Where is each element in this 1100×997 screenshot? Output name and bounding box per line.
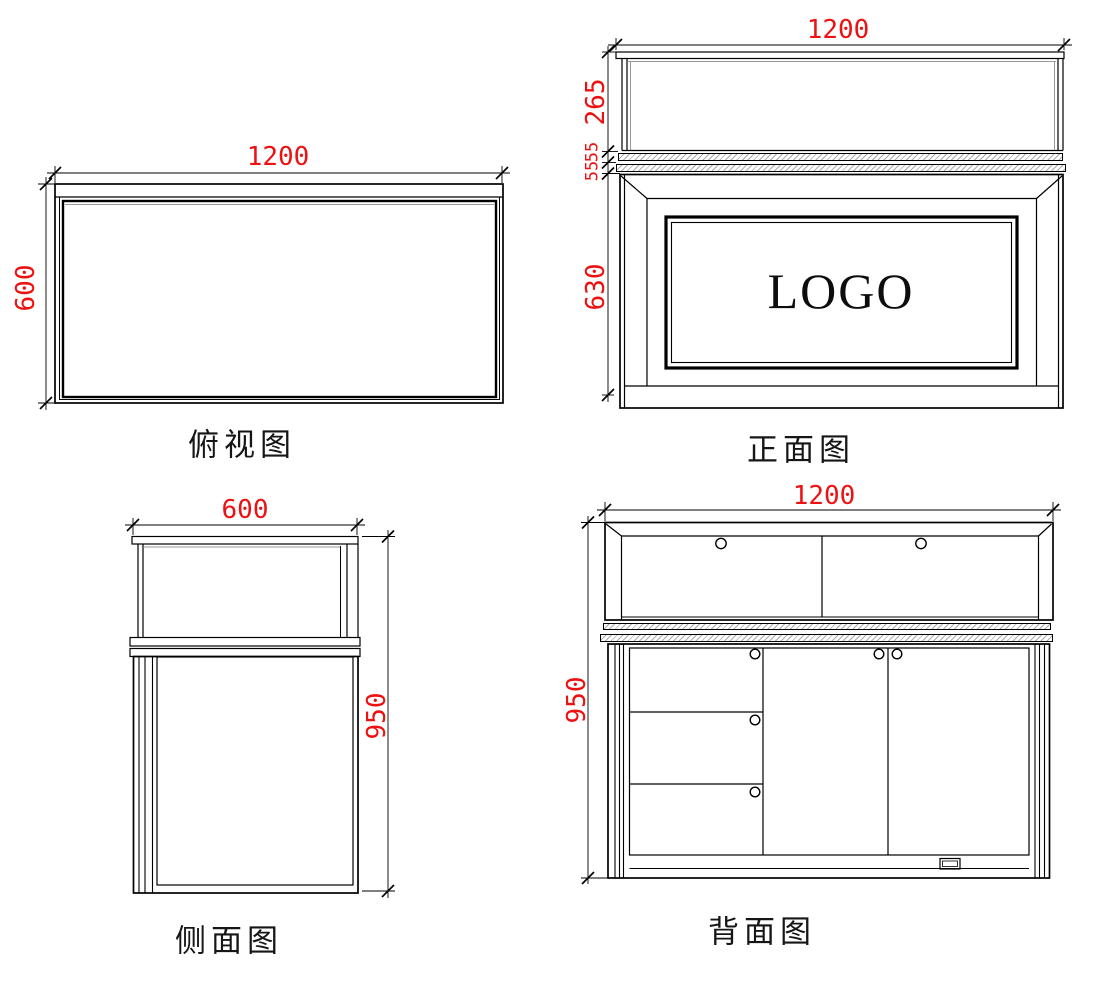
back-view-title: 背面图 [708,917,816,948]
back-counter-hatch-band-1 [603,623,1051,631]
front-view-body-height-dimension: 630 [583,264,609,311]
side-view-height-dimension: 950 [364,693,390,740]
front-view-width-dimension: 1200 [807,17,870,43]
back-view-height-dimension: 950 [564,677,590,724]
top-view-title: 俯视图 [188,430,296,461]
front-view-glass-height-dimension: 265 [583,79,609,126]
back-counter-hatch-band-2 [600,634,1053,642]
back-view-lines [581,502,1061,884]
top-view-width-dimension: 1200 [247,144,310,170]
side-view-lines [125,518,395,898]
front-counter-hatch-band-1 [618,153,1063,161]
drawing-canvas: 1200 600 俯视图 1200 265 55 55 630 LOGO 正面图… [0,0,1100,997]
side-view-depth-dimension: 600 [222,497,269,523]
front-view-band2-dimension: 55 [585,161,602,181]
logo-text: LOGO [768,266,915,316]
front-view-title: 正面图 [747,435,855,466]
back-view-width-dimension: 1200 [793,483,856,509]
side-view-title: 侧面图 [175,926,283,957]
front-counter-hatch-band-2 [616,164,1067,172]
front-view-lines [602,38,1072,408]
front-view-band1-dimension: 55 [585,142,602,162]
top-view-depth-dimension: 600 [13,265,39,312]
drawing-linework [0,0,1100,997]
top-view-lines [38,166,510,410]
